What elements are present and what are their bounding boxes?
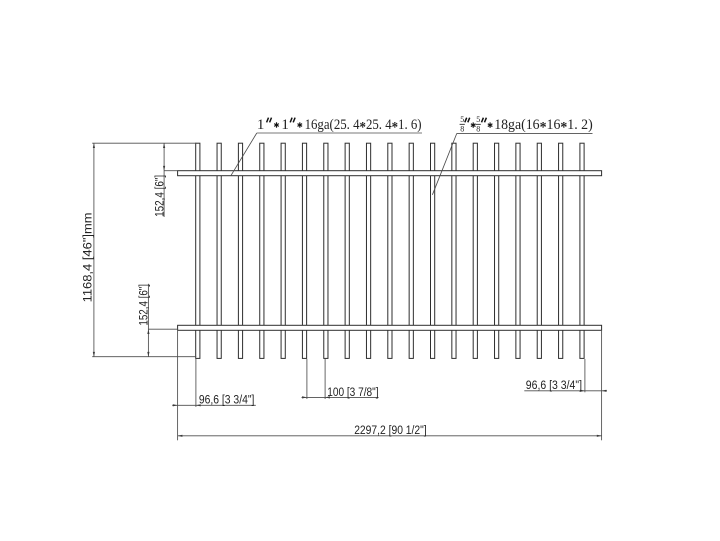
svg-text:1: 1 bbox=[281, 117, 289, 133]
svg-text:16ga(25. 4*25. 4*1. 6): 16ga(25. 4*25. 4*1. 6) bbox=[305, 117, 422, 136]
svg-text:18ga(16*16*1. 2): 18ga(16*16*1. 2) bbox=[494, 117, 593, 136]
svg-text:8: 8 bbox=[476, 124, 480, 133]
svg-text:5: 5 bbox=[476, 115, 480, 124]
svg-text:8: 8 bbox=[460, 124, 464, 133]
svg-text:152,4 [6"]: 152,4 [6"] bbox=[139, 284, 151, 326]
svg-text:96,6 [3 3/4"]: 96,6 [3 3/4"] bbox=[526, 380, 582, 392]
svg-text:1168,4 [46"]mm: 1168,4 [46"]mm bbox=[82, 212, 94, 302]
svg-text:152,4 [6"]: 152,4 [6"] bbox=[154, 175, 166, 217]
svg-text:2297,2 [90 1/2"]: 2297,2 [90 1/2"] bbox=[354, 425, 427, 437]
svg-text:96,6 [3 3/4"]: 96,6 [3 3/4"] bbox=[199, 394, 255, 406]
svg-text:100 [3 7/8"]: 100 [3 7/8"] bbox=[327, 387, 378, 399]
svg-text:5: 5 bbox=[460, 115, 464, 124]
svg-text:1: 1 bbox=[257, 117, 265, 133]
